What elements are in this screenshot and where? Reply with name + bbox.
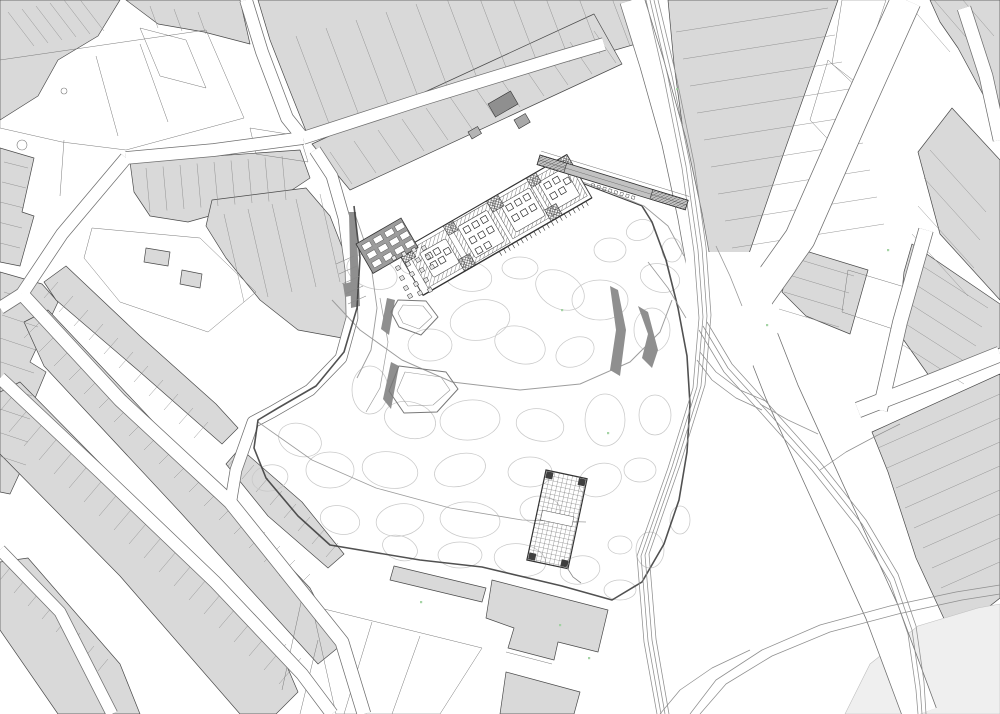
museum-band (398, 155, 594, 300)
planting-dot (399, 275, 404, 280)
tram-track-line (660, 650, 750, 714)
block-left-strip (0, 148, 34, 266)
survey-green-dot (420, 601, 422, 603)
survey-green-dot (607, 432, 609, 434)
survey-green-dot (887, 249, 889, 251)
tree-contour (604, 580, 636, 600)
block-north-west-bit (126, 0, 250, 44)
tree-contour (585, 394, 625, 446)
tree-contour (306, 452, 354, 488)
tree-contour (594, 238, 626, 262)
planting-dot (403, 285, 408, 290)
park-mound (391, 300, 438, 335)
block-courtyard-bit-2 (180, 270, 202, 288)
tree-contour (408, 329, 452, 361)
survey-green-dot (561, 309, 563, 311)
slab-south-thin (390, 566, 486, 602)
survey-green-dot (676, 88, 678, 90)
park-path (258, 422, 586, 522)
site-plan-canvas (0, 0, 1000, 714)
survey-green-dot (766, 324, 768, 326)
survey-green-dot (588, 657, 590, 659)
slab-south-big (486, 580, 608, 660)
tree-contour (274, 417, 326, 462)
roof-rect (514, 114, 530, 129)
block-courtyard-bit-1 (144, 248, 170, 266)
tree-contour (431, 448, 490, 492)
bottom-center-parcel (312, 606, 482, 714)
tree-contour (379, 531, 421, 566)
tree-contour (489, 319, 550, 371)
park-pier (527, 470, 587, 569)
tree-contour (438, 397, 501, 442)
tree-contour (439, 499, 502, 540)
slope-hatch-band (610, 286, 626, 376)
block-top-left-corner (0, 0, 120, 120)
tree-contour (374, 500, 427, 540)
tree-contour (447, 295, 513, 345)
tree-contour (359, 447, 420, 492)
site-plan-page (0, 0, 1000, 714)
survey-green-dot (559, 624, 561, 626)
tree-contour (608, 536, 632, 554)
tree-contour (551, 331, 599, 373)
tree-contour (514, 405, 567, 445)
tree-contour (639, 395, 671, 435)
layer-pier-structure (527, 470, 587, 583)
tree-contour (624, 458, 656, 482)
tree-contour (502, 257, 538, 279)
plaza-wedge (140, 28, 206, 88)
slab-south-lower (500, 672, 580, 714)
kerb-arc (648, 262, 686, 318)
planting-dot (407, 293, 412, 298)
planting-dot (395, 265, 400, 270)
